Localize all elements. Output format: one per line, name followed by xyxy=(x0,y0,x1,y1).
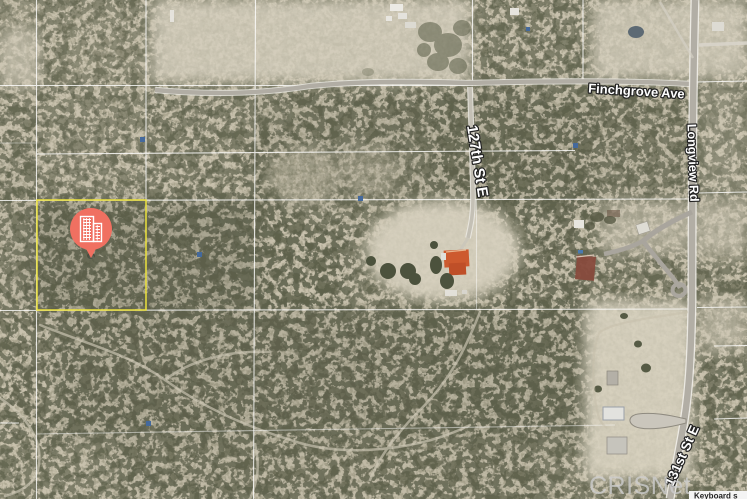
svg-text:CRISNet: CRISNet xyxy=(589,472,691,499)
svg-text:Keyboard s: Keyboard s xyxy=(694,492,738,499)
svg-text:Longview Rd: Longview Rd xyxy=(685,124,702,202)
